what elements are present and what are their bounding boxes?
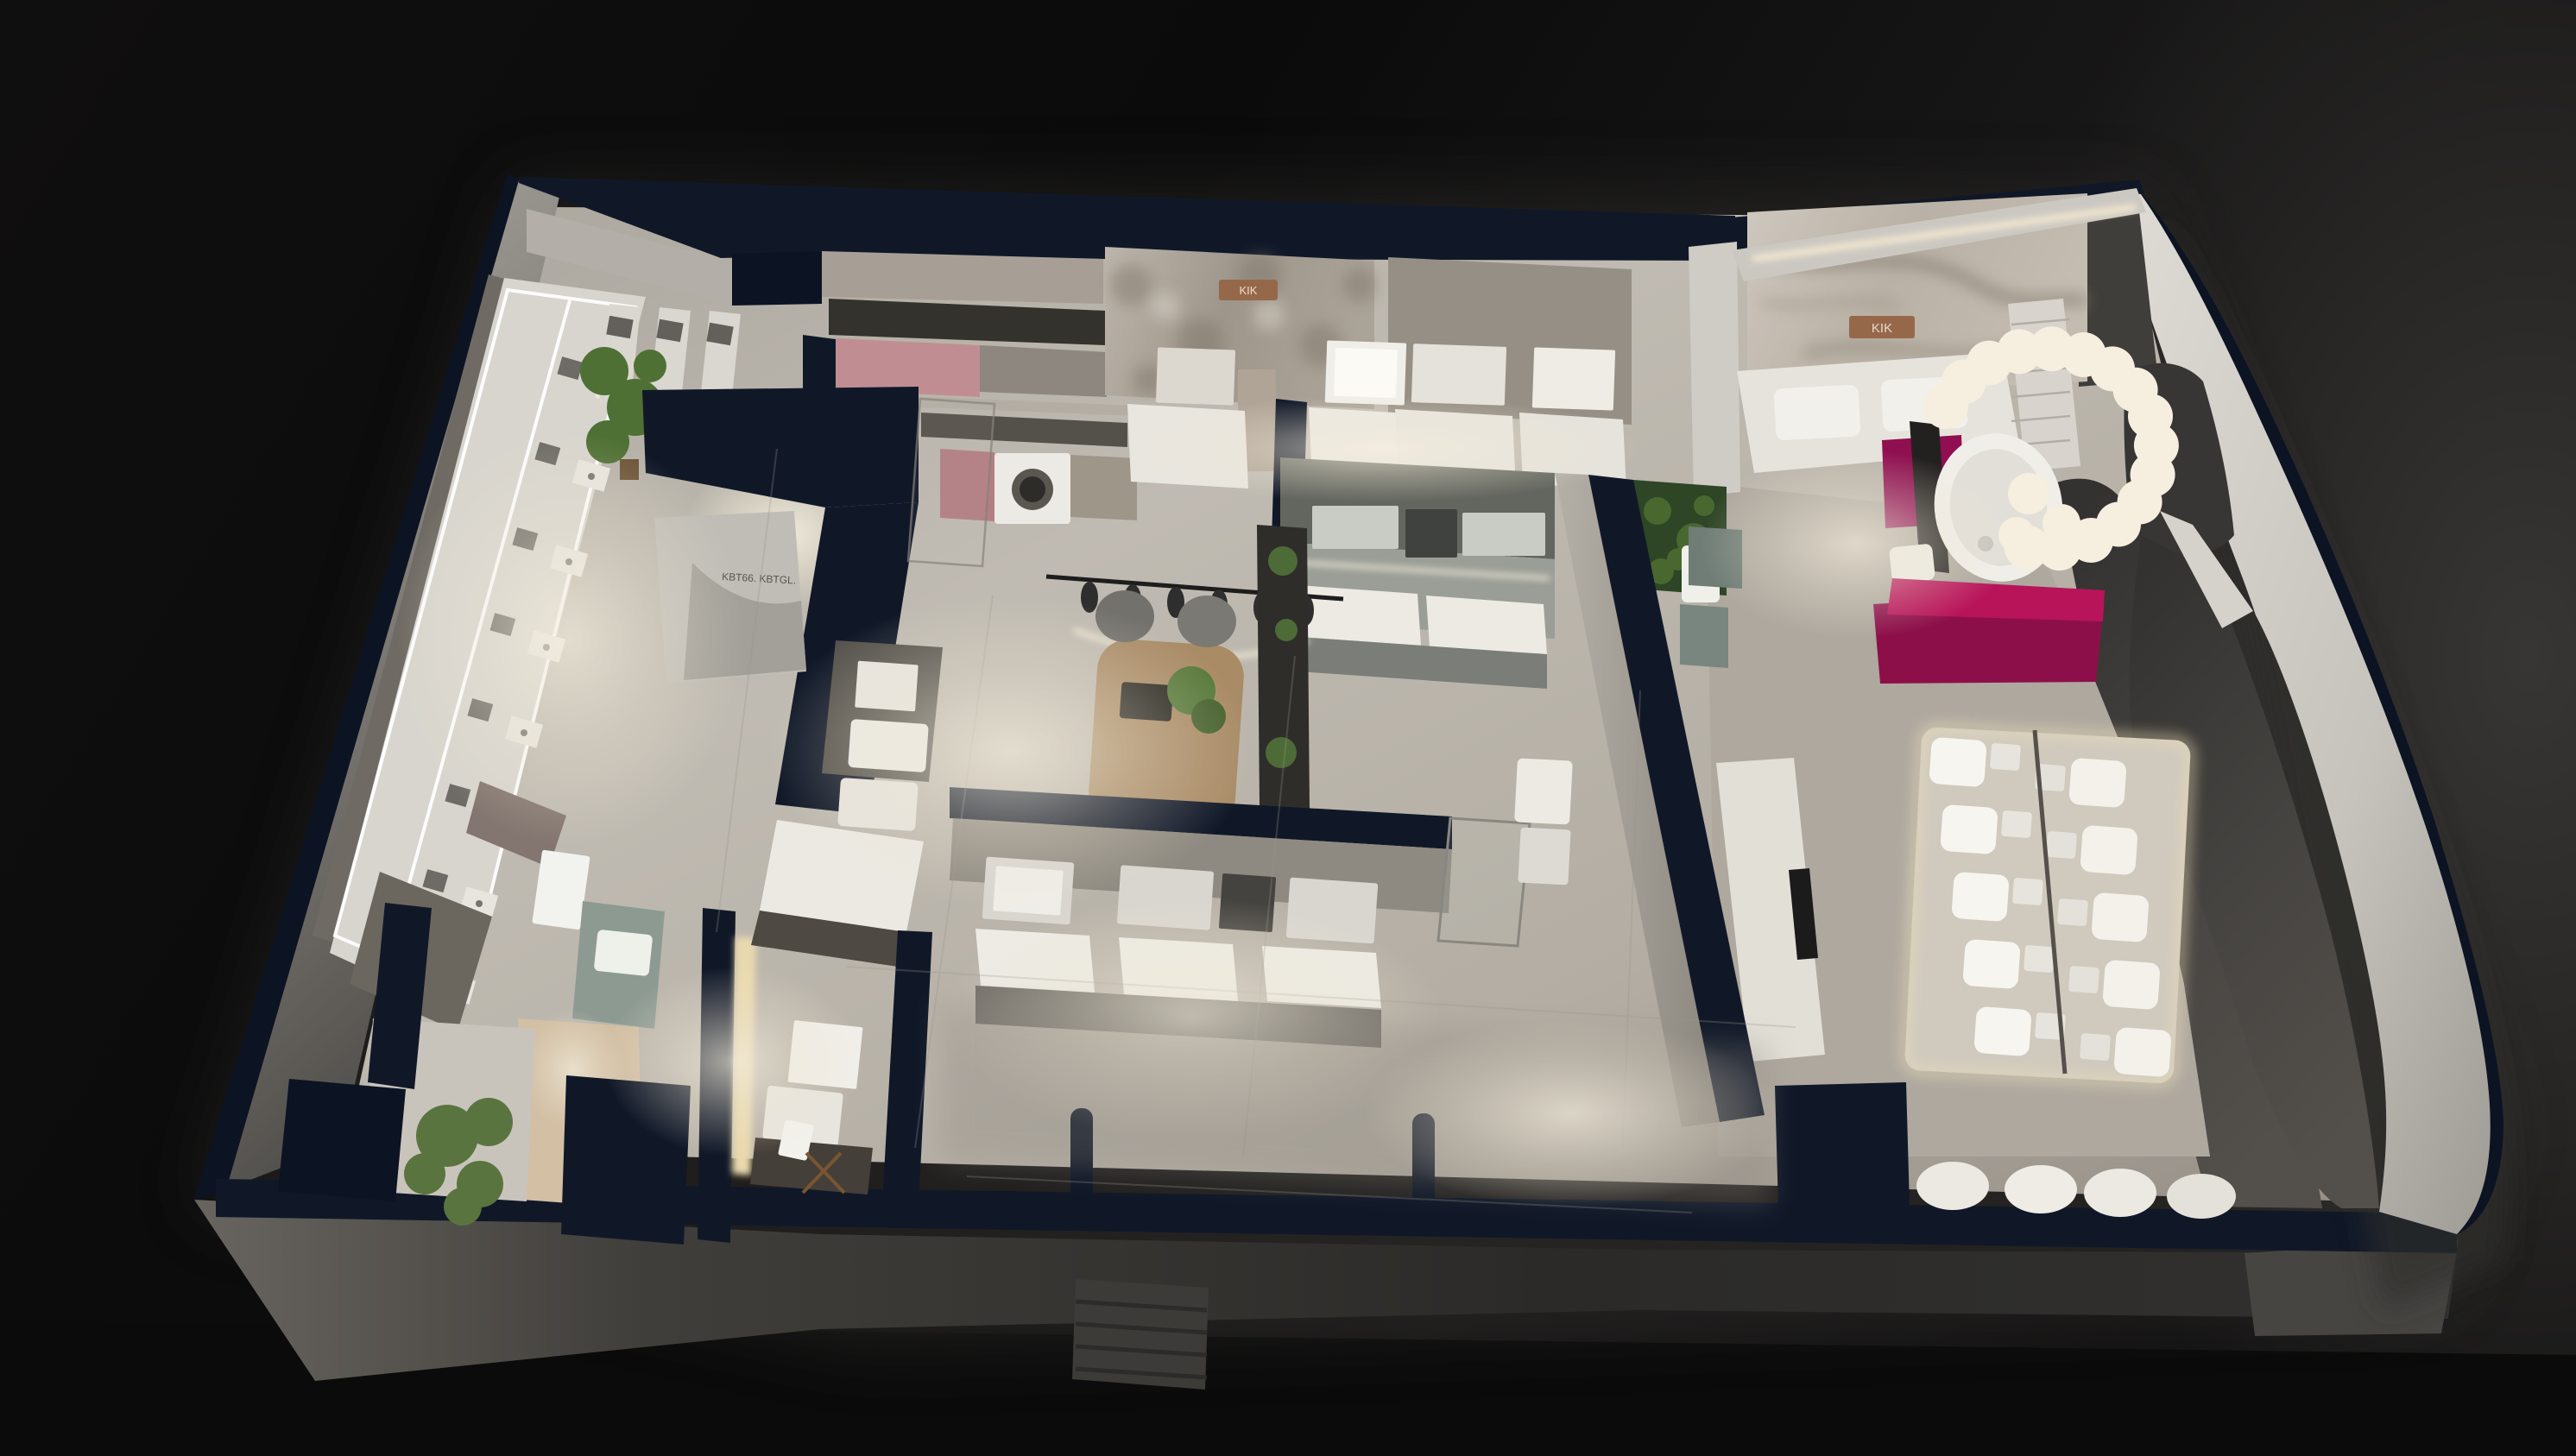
svg-text:KIK: KIK bbox=[1872, 321, 1892, 336]
svg-text:KIK: KIK bbox=[1240, 284, 1258, 297]
